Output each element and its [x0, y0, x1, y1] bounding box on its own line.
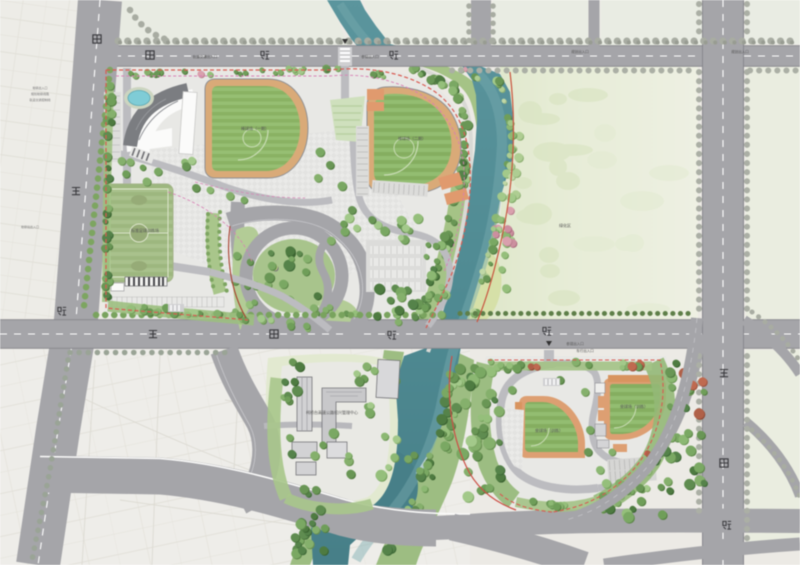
svg-text:车行出入口: 车行出入口 — [576, 348, 594, 353]
svg-text:地铁出入口: 地铁出入口 — [32, 85, 47, 90]
svg-text:轨道交通出入口: 轨道交通出入口 — [193, 54, 218, 59]
svg-text:棒球场（一期）: 棒球场（一期） — [241, 125, 269, 131]
svg-text:参观出入口: 参观出入口 — [361, 54, 379, 59]
svg-text:标准足球训练场: 标准足球训练场 — [131, 227, 159, 233]
svg-text:柯桥台高速公路绍兴管理中心: 柯桥台高速公路绍兴管理中心 — [306, 409, 358, 415]
svg-text:规划出入口: 规划出入口 — [571, 49, 589, 54]
svg-text:轨道交通控制线: 轨道交通控制线 — [29, 97, 50, 102]
svg-text:地铁站出入口: 地铁站出入口 — [21, 224, 39, 229]
svg-text:垒球场（训练）: 垒球场（训练） — [620, 403, 648, 409]
svg-text:规划出入口: 规划出入口 — [731, 49, 749, 54]
svg-text:参观出入口: 参观出入口 — [566, 341, 584, 346]
svg-text:垒球场（训练）: 垒球场（训练） — [535, 427, 563, 433]
svg-text:规划地铁线路: 规划地铁线路 — [31, 91, 49, 96]
svg-text:棒球场（二期）: 棒球场（二期） — [398, 135, 426, 141]
svg-text:绿化区: 绿化区 — [559, 222, 571, 228]
